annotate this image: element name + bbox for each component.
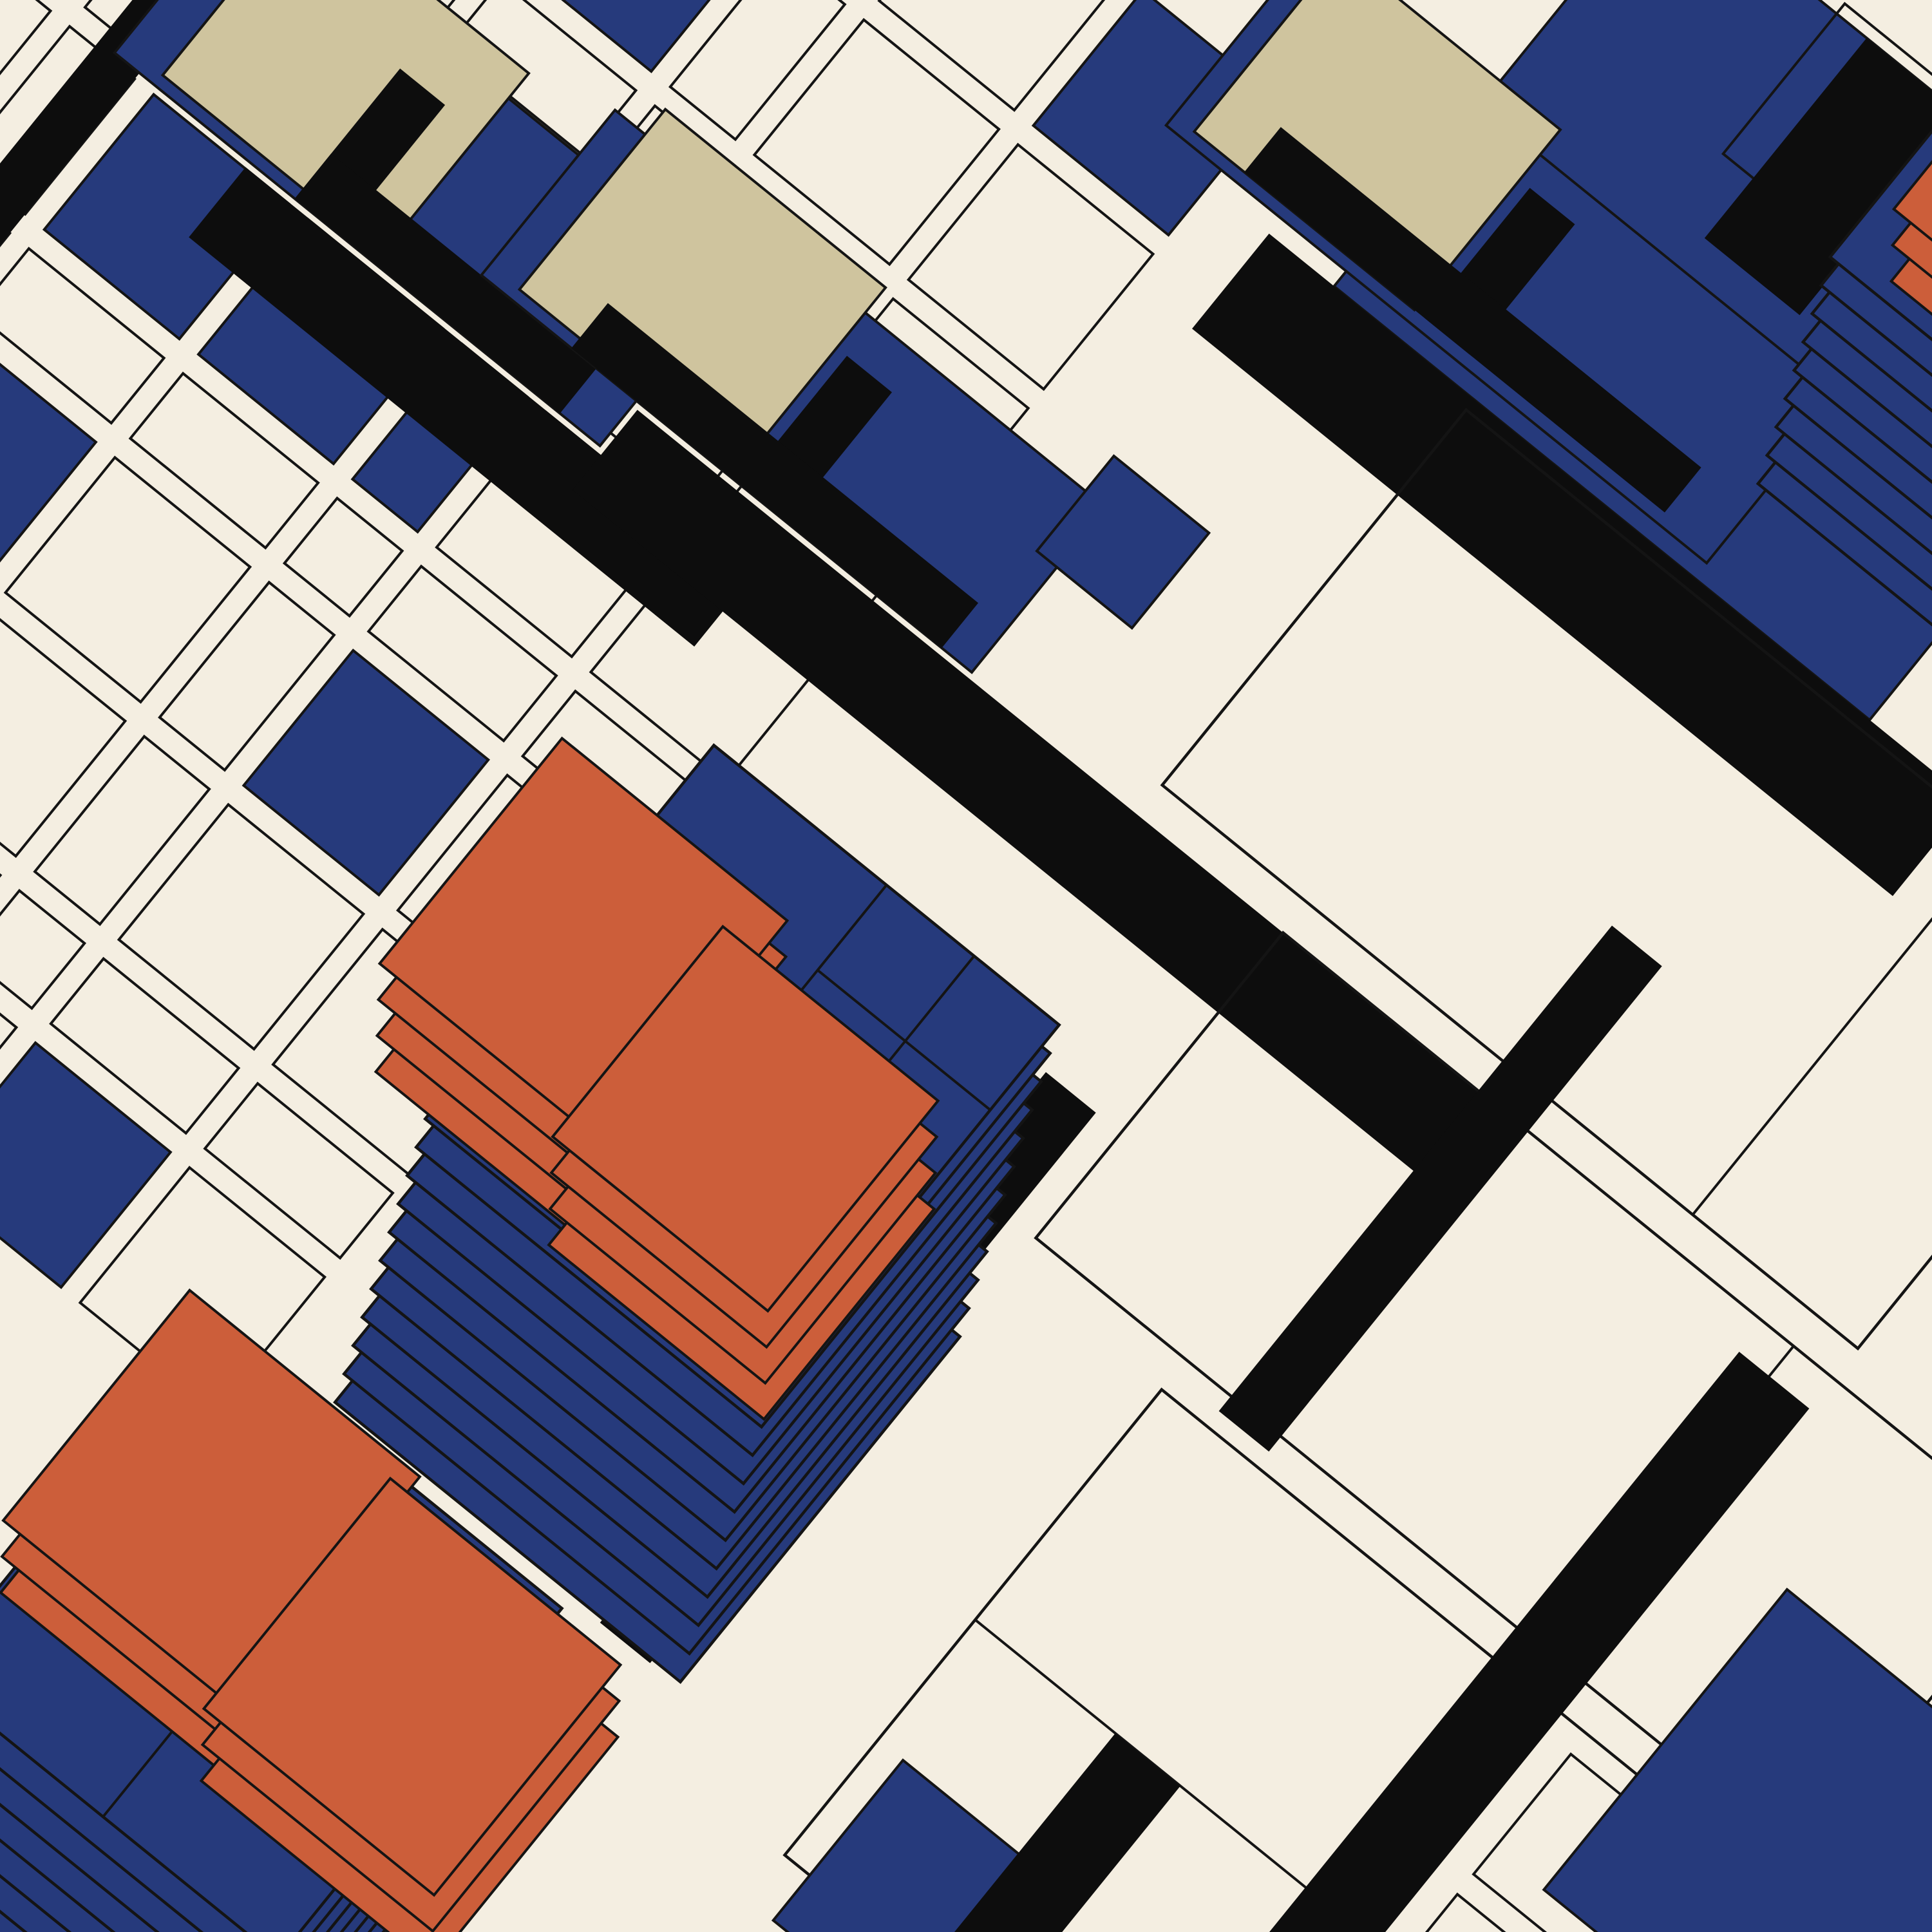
artwork-stage [0, 0, 1932, 1932]
grid-cell [35, 737, 209, 925]
grid-cell [0, 891, 84, 1009]
abstract-artwork [0, 0, 1932, 1932]
grid-cell [670, 0, 845, 140]
grid-cell [285, 498, 402, 616]
grid-cell-blue [0, 1043, 171, 1287]
grid-cell-blue [516, 0, 761, 71]
grid-cell-blue [243, 650, 488, 895]
panel-divider-1 [1692, 839, 1932, 1215]
grid-cell [0, 612, 125, 857]
grid-cell [205, 1083, 393, 1258]
